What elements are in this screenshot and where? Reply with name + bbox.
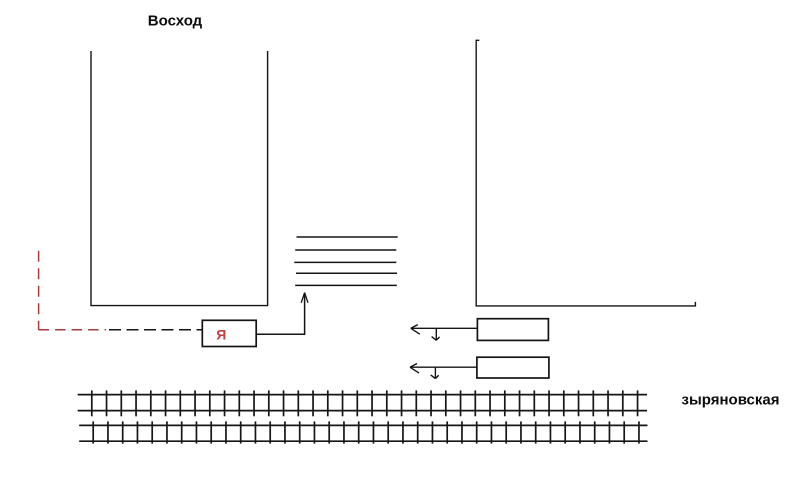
svg-text:Я: Я [216,326,226,342]
svg-text:зыряновская: зыряновская [682,392,780,409]
svg-text:Восход: Восход [148,12,203,29]
